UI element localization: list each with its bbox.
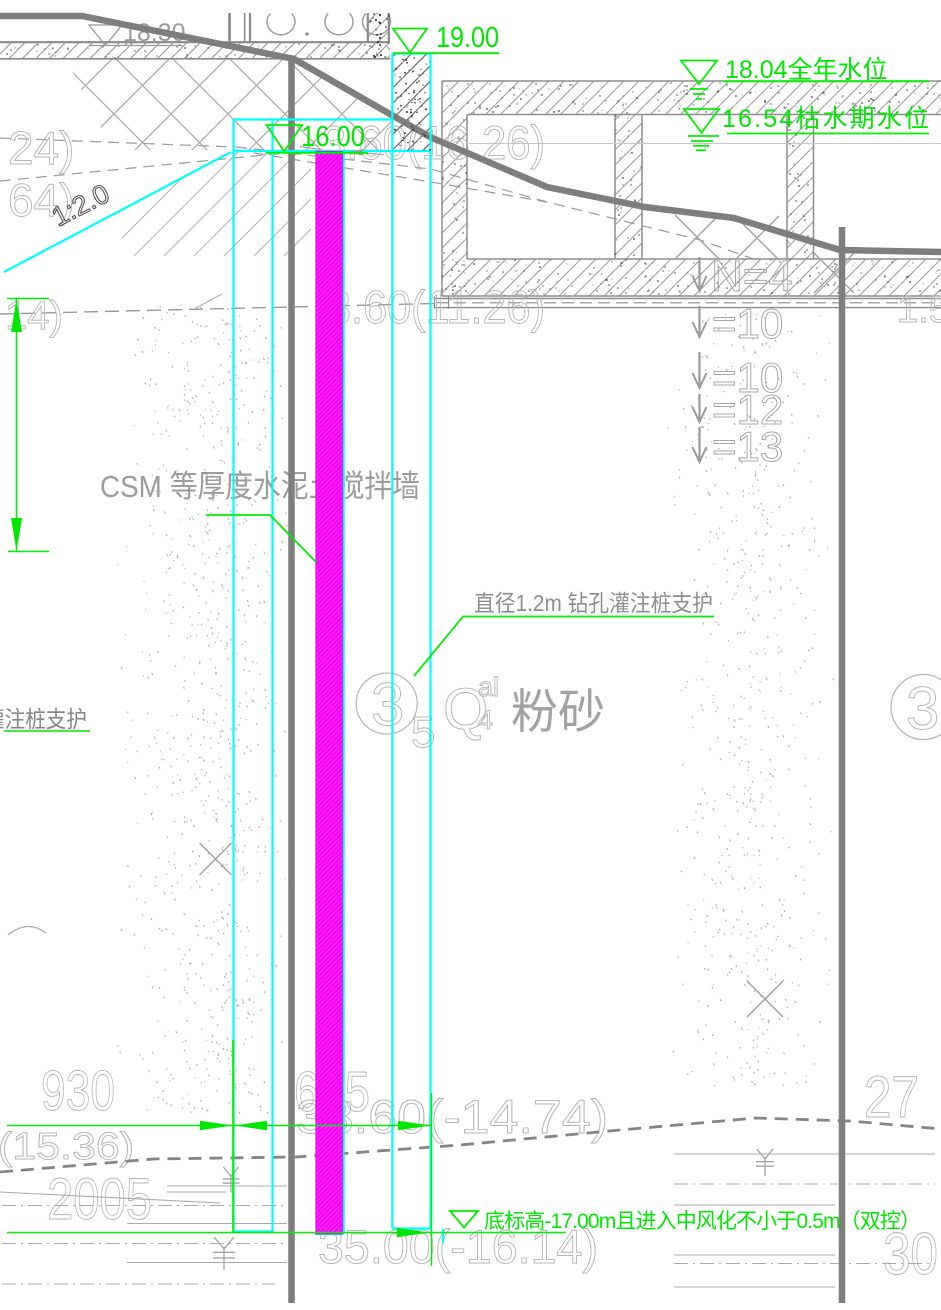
svg-text:930: 930 [41, 1059, 115, 1123]
svg-text:灌注桩支护: 灌注桩支护 [0, 706, 87, 732]
svg-text:2005: 2005 [47, 1167, 152, 1232]
svg-text:19.00: 19.00 [436, 22, 499, 54]
svg-text:3: 3 [906, 675, 939, 742]
svg-text:3: 3 [371, 671, 404, 738]
svg-text:底标高-17.00m且进入中风化不小于0.5m（双控）: 底标高-17.00m且进入中风化不小于0.5m（双控） [484, 1210, 921, 1233]
svg-text:27: 27 [864, 1065, 919, 1130]
svg-text:3.60(11.26): 3.60(11.26) [327, 281, 545, 333]
svg-text:直径1.2m 钻孔灌注桩支护: 直径1.2m 钻孔灌注桩支护 [474, 590, 713, 616]
svg-text:CSM 等厚度水泥土搅拌墙: CSM 等厚度水泥土搅拌墙 [100, 469, 420, 504]
svg-text:18.04全年水位: 18.04全年水位 [725, 56, 888, 84]
svg-text:=10: =10 [712, 300, 783, 347]
svg-text:al: al [478, 672, 499, 702]
svg-text:4: 4 [478, 705, 493, 735]
svg-text:粉砂: 粉砂 [511, 685, 605, 738]
svg-text:N=4: N=4 [711, 252, 793, 301]
svg-text:16.00: 16.00 [301, 121, 365, 153]
svg-text:24): 24) [8, 122, 74, 174]
svg-text:5: 5 [411, 708, 435, 757]
svg-text:1.5: 1.5 [897, 289, 941, 331]
svg-text:=13: =13 [712, 423, 783, 470]
